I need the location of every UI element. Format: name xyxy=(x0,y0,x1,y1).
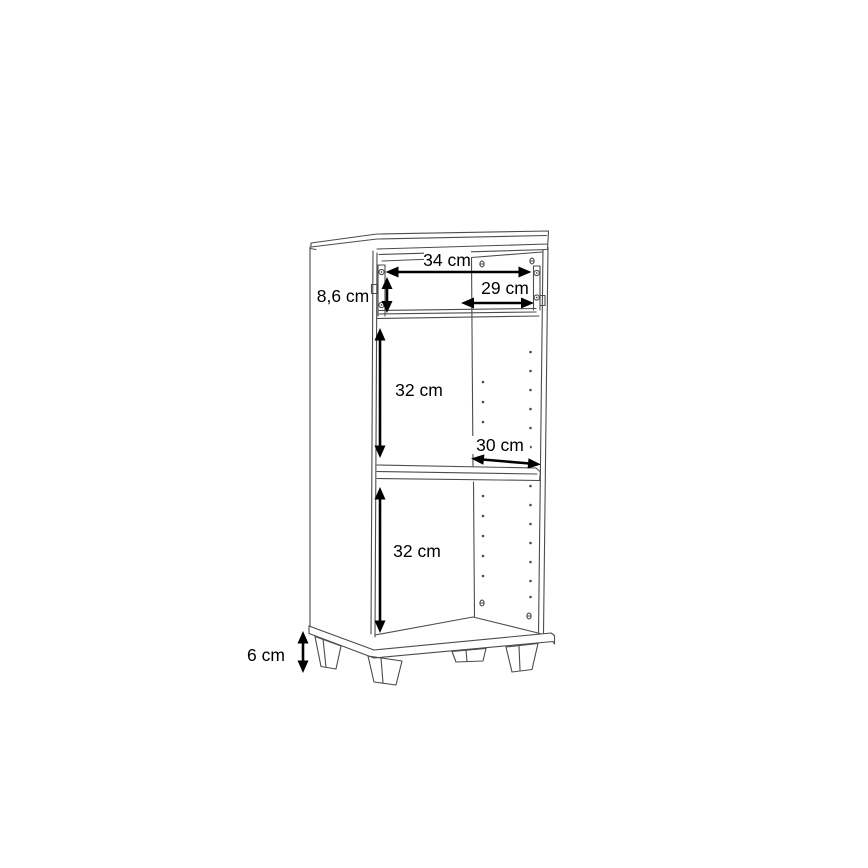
drawing-canvas: 34 cm 29 cm 8,6 cm 32 cm 30 cm 32 cm xyxy=(0,0,868,868)
dimension-shelf-depth: 30 cm xyxy=(471,435,541,469)
feet xyxy=(315,637,538,686)
pin-hole xyxy=(529,408,532,411)
pin-hole xyxy=(529,485,532,488)
dimension-label-inner-width: 34 cm xyxy=(423,250,471,270)
pin-hole xyxy=(482,381,485,384)
pin-hole xyxy=(482,575,485,578)
pin-hole xyxy=(529,523,532,526)
screw-head-icon xyxy=(527,613,531,619)
cam-pin xyxy=(536,272,538,274)
pin-hole xyxy=(482,535,485,538)
arrowhead-left-icon xyxy=(461,298,474,309)
foot-front-right xyxy=(506,644,538,673)
pin-hole xyxy=(482,421,485,424)
bottom-panel xyxy=(309,617,555,658)
dimension-upper-section: 32 cm xyxy=(375,328,443,458)
pin-hole xyxy=(529,596,532,599)
dimension-label-drawer-height: 8,6 cm xyxy=(317,286,370,306)
dimension-label-feet-height: 6 cm xyxy=(247,645,285,665)
bottom-panel-lines xyxy=(309,617,555,658)
arrowhead-down-icon xyxy=(375,621,386,634)
front-left-stile xyxy=(371,251,377,637)
arrowhead-down-icon xyxy=(298,661,309,674)
pin-hole xyxy=(529,580,532,583)
pin-hole xyxy=(529,504,532,507)
pin-hole xyxy=(482,495,485,498)
cam-pin xyxy=(381,271,383,273)
dimension-lower-section: 32 cm xyxy=(375,487,441,633)
shelf-lines xyxy=(377,465,541,481)
cam-pin xyxy=(536,297,538,299)
cabinet-dimension-diagram: 34 cm 29 cm 8,6 cm 32 cm 30 cm 32 cm xyxy=(0,0,868,868)
screw-head-icon xyxy=(480,261,484,267)
arrowhead-right-icon xyxy=(521,298,534,309)
dimension-label-lower-section: 32 cm xyxy=(393,541,441,561)
screw-head-icon xyxy=(480,600,484,606)
dimension-line xyxy=(483,460,530,464)
drawer-cross-rail xyxy=(377,309,539,319)
pin-hole xyxy=(529,370,532,373)
pin-hole xyxy=(529,561,532,564)
foot-back-center xyxy=(452,649,486,663)
foot-back-left xyxy=(315,637,341,670)
pin-hole xyxy=(482,401,485,404)
cam-pin xyxy=(381,304,383,306)
screw-head-icon xyxy=(530,258,534,264)
foot-front-left xyxy=(368,656,402,685)
pin-hole xyxy=(529,427,532,430)
shelf xyxy=(377,465,541,481)
pin-hole xyxy=(529,389,532,392)
pin-hole xyxy=(529,542,532,545)
arrowhead-right-icon xyxy=(528,458,541,468)
arrowhead-left-icon xyxy=(386,267,399,278)
dimension-feet-height: 6 cm xyxy=(247,631,308,673)
dimension-label-shelf-depth: 30 cm xyxy=(476,435,524,455)
pin-hole xyxy=(482,515,485,518)
arrowhead-up-icon xyxy=(382,277,393,289)
pin-hole xyxy=(482,555,485,558)
arrowhead-right-icon xyxy=(519,267,532,278)
dimension-label-top-depth: 29 cm xyxy=(481,278,529,298)
dimension-label-upper-section: 32 cm xyxy=(395,380,443,400)
arrowhead-up-icon xyxy=(298,631,309,644)
pin-hole xyxy=(529,351,532,354)
left-rail xyxy=(372,265,386,316)
